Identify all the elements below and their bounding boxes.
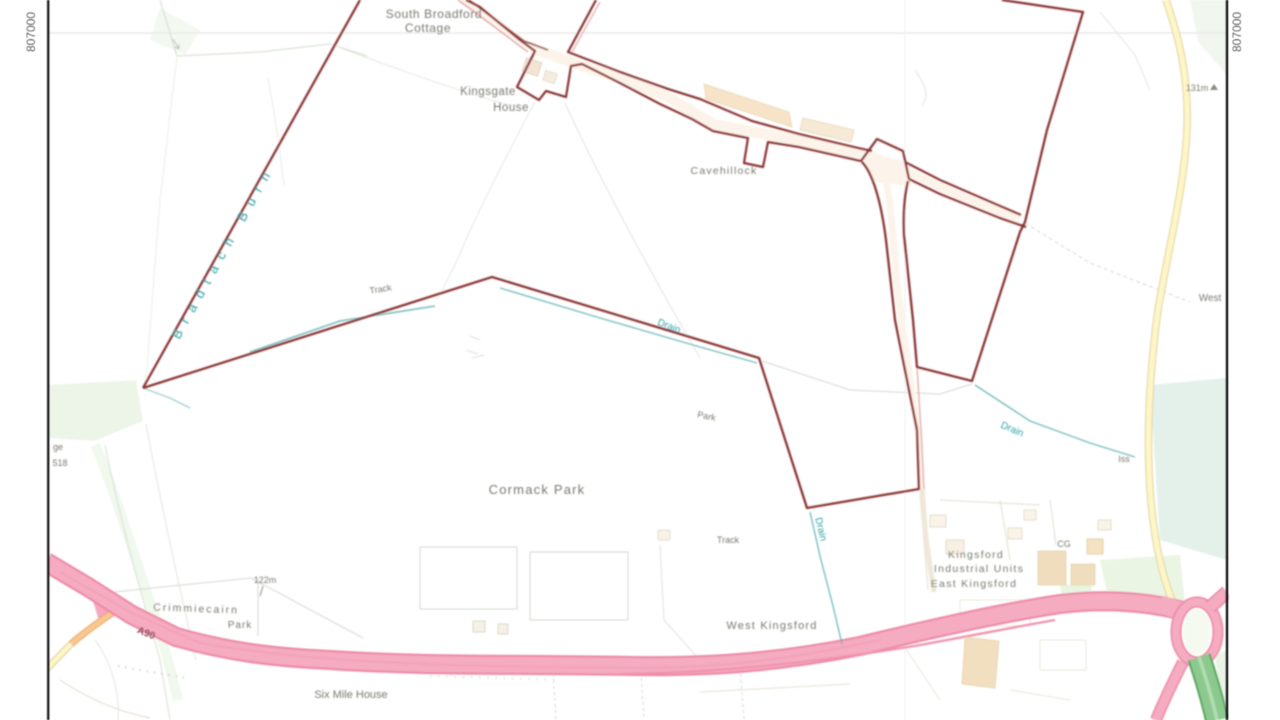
svg-text:East Kingsford: East Kingsford xyxy=(931,578,1018,590)
svg-text:Cottage: Cottage xyxy=(405,21,451,35)
svg-text:House: House xyxy=(493,102,529,114)
svg-text:Iss: Iss xyxy=(1118,454,1130,464)
svg-text:West Kingsford: West Kingsford xyxy=(726,620,817,632)
svg-text:Six Mile House: Six Mile House xyxy=(314,689,387,701)
svg-text:807000: 807000 xyxy=(1230,12,1244,52)
svg-text:807000: 807000 xyxy=(24,12,38,52)
svg-text:CG: CG xyxy=(1057,539,1071,549)
svg-text:518: 518 xyxy=(52,458,67,468)
svg-text:Kingsford: Kingsford xyxy=(948,549,1004,561)
svg-text:Kingsgate: Kingsgate xyxy=(460,86,516,98)
svg-text:Cormack Park: Cormack Park xyxy=(489,482,586,497)
svg-text:Track: Track xyxy=(717,535,740,545)
svg-text:Park: Park xyxy=(228,620,253,631)
svg-text:Industrial Units: Industrial Units xyxy=(934,563,1024,575)
svg-text:West: West xyxy=(1199,293,1222,304)
svg-text:ge: ge xyxy=(53,442,63,452)
svg-text:South Broadford: South Broadford xyxy=(386,7,482,21)
svg-text:122m: 122m xyxy=(254,575,277,585)
svg-text:Cavehillock: Cavehillock xyxy=(691,165,758,177)
svg-text:131m: 131m xyxy=(1186,83,1209,93)
